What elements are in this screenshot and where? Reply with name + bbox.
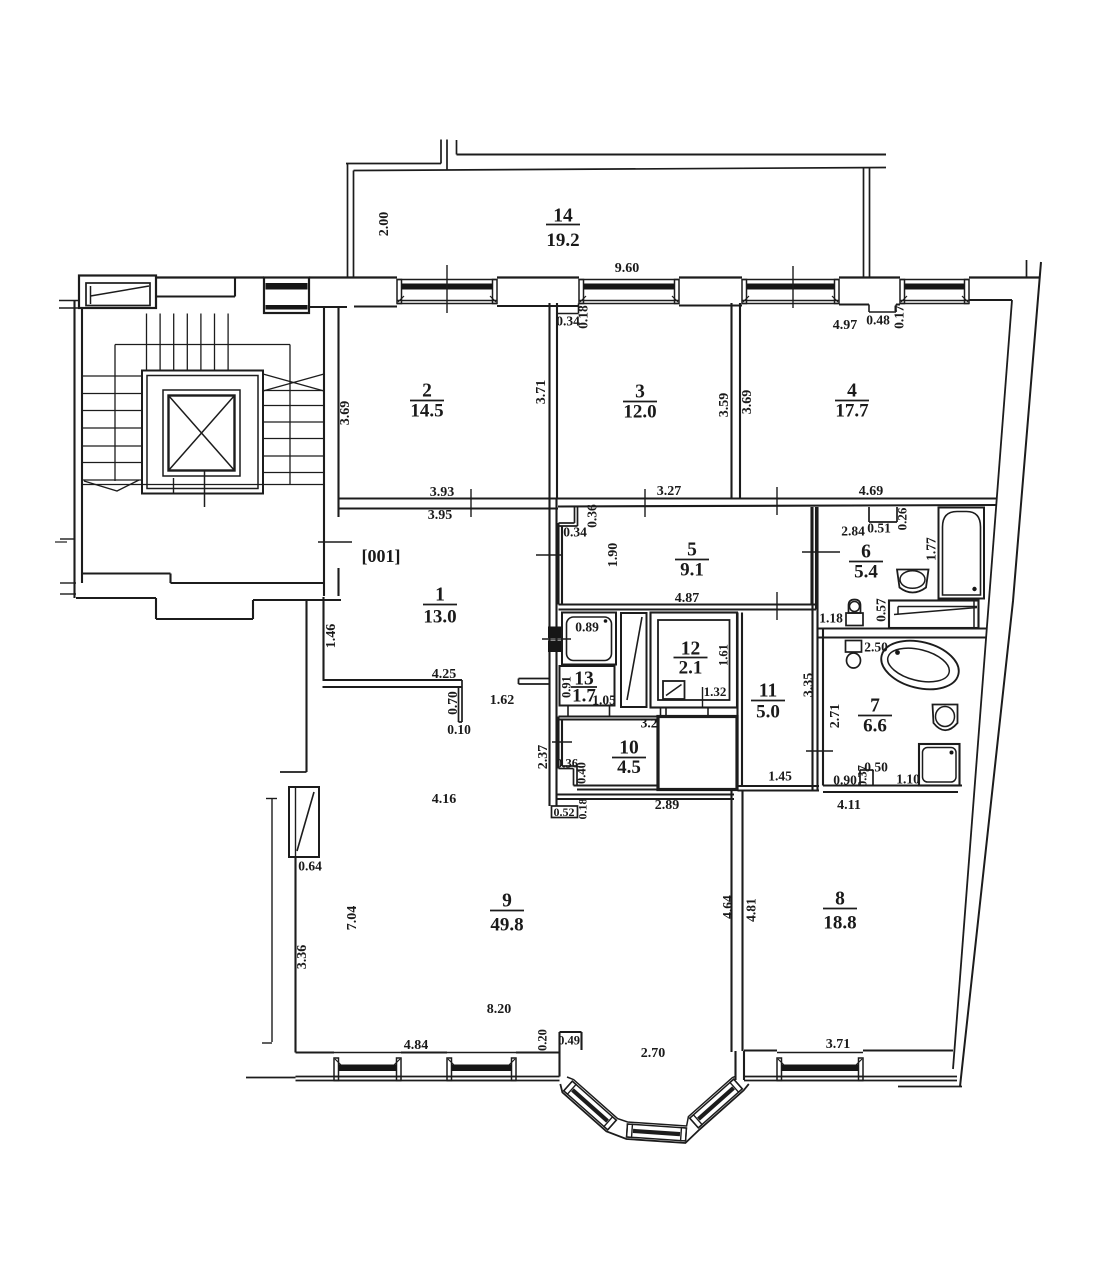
svg-text:0.34: 0.34: [563, 525, 587, 540]
svg-text:4.5: 4.5: [617, 757, 641, 778]
svg-text:2.1: 2.1: [679, 657, 703, 678]
svg-text:1.05: 1.05: [592, 693, 616, 708]
svg-text:0.91: 0.91: [559, 676, 573, 698]
svg-text:6.6: 6.6: [863, 715, 887, 736]
svg-text:2.70: 2.70: [641, 1046, 666, 1061]
svg-text:1.10: 1.10: [896, 772, 920, 787]
svg-text:0.36: 0.36: [585, 504, 600, 528]
svg-text:9.1: 9.1: [680, 559, 704, 580]
svg-text:[001]: [001]: [362, 546, 401, 566]
svg-text:8.20: 8.20: [487, 1002, 512, 1017]
svg-text:2.00: 2.00: [377, 212, 392, 237]
svg-text:0.64: 0.64: [298, 859, 322, 874]
svg-text:8: 8: [835, 889, 845, 910]
svg-text:0.57: 0.57: [874, 598, 889, 622]
svg-text:10: 10: [619, 738, 639, 759]
svg-text:0.18: 0.18: [576, 305, 591, 329]
svg-text:0.10: 0.10: [447, 722, 471, 737]
svg-text:0.52: 0.52: [554, 805, 575, 819]
svg-text:0.89: 0.89: [575, 620, 599, 635]
svg-text:11: 11: [759, 681, 777, 702]
svg-text:1.62: 1.62: [490, 693, 515, 708]
svg-text:4: 4: [847, 381, 857, 402]
svg-text:1.61: 1.61: [716, 644, 730, 666]
svg-text:0.26: 0.26: [894, 507, 909, 530]
svg-text:1.77: 1.77: [924, 537, 939, 561]
svg-text:5.0: 5.0: [756, 701, 780, 722]
svg-text:4.84: 4.84: [404, 1038, 429, 1053]
svg-text:0.48: 0.48: [866, 313, 890, 328]
svg-text:1.18: 1.18: [819, 611, 843, 626]
svg-text:0.90: 0.90: [833, 773, 857, 788]
svg-text:3.93: 3.93: [430, 485, 455, 500]
svg-text:0.18: 0.18: [576, 799, 590, 820]
svg-text:14: 14: [553, 206, 573, 227]
svg-text:4.16: 4.16: [432, 792, 457, 807]
svg-text:2.84: 2.84: [841, 524, 865, 539]
svg-text:0.20: 0.20: [535, 1029, 549, 1051]
svg-text:2.71: 2.71: [828, 704, 843, 729]
svg-text:3.59: 3.59: [717, 393, 732, 418]
svg-text:4.25: 4.25: [432, 667, 457, 682]
svg-text:4.64: 4.64: [720, 895, 735, 919]
svg-text:3.95: 3.95: [428, 508, 453, 523]
svg-text:18.8: 18.8: [823, 912, 856, 933]
svg-text:2.50: 2.50: [864, 640, 888, 655]
svg-text:1.46: 1.46: [324, 624, 339, 649]
svg-text:0.51: 0.51: [867, 521, 891, 536]
svg-text:3.2: 3.2: [641, 716, 658, 731]
svg-text:4.11: 4.11: [837, 798, 861, 813]
svg-text:5: 5: [687, 540, 697, 561]
svg-text:14.5: 14.5: [410, 400, 443, 421]
svg-text:3.35: 3.35: [801, 673, 816, 698]
svg-text:17.7: 17.7: [835, 400, 869, 421]
svg-text:9.60: 9.60: [615, 261, 640, 276]
svg-text:4.97: 4.97: [833, 318, 858, 333]
svg-text:3.36: 3.36: [295, 945, 310, 970]
svg-text:2: 2: [422, 381, 432, 402]
svg-text:3.71: 3.71: [826, 1037, 851, 1052]
svg-text:0.70: 0.70: [445, 691, 460, 715]
svg-text:4.69: 4.69: [859, 484, 884, 499]
svg-text:4.87: 4.87: [675, 591, 700, 606]
svg-text:3: 3: [635, 382, 645, 403]
svg-text:3.27: 3.27: [657, 484, 682, 499]
svg-text:3.69: 3.69: [338, 401, 353, 426]
svg-text:3.69: 3.69: [740, 390, 755, 415]
svg-text:13.0: 13.0: [423, 606, 456, 627]
svg-text:19.2: 19.2: [546, 230, 579, 251]
svg-text:9: 9: [502, 891, 512, 912]
svg-text:1.90: 1.90: [606, 543, 621, 568]
svg-text:7: 7: [870, 696, 880, 717]
svg-text:6: 6: [861, 542, 871, 563]
svg-text:12.0: 12.0: [623, 401, 656, 422]
svg-text:1: 1: [435, 585, 445, 606]
svg-text:49.8: 49.8: [490, 914, 523, 935]
svg-text:0.40: 0.40: [574, 762, 588, 784]
svg-text:0.50: 0.50: [864, 760, 888, 775]
svg-text:2.37: 2.37: [536, 745, 551, 770]
svg-text:2.89: 2.89: [655, 798, 680, 813]
svg-text:3.71: 3.71: [534, 380, 549, 405]
svg-text:1.45: 1.45: [768, 769, 792, 784]
svg-text:7.04: 7.04: [345, 906, 360, 931]
svg-text:0.17: 0.17: [892, 305, 907, 329]
svg-text:4.81: 4.81: [744, 898, 759, 922]
svg-text:1.32: 1.32: [704, 684, 727, 699]
svg-text:0.49: 0.49: [558, 1033, 580, 1047]
svg-text:5.4: 5.4: [854, 561, 878, 582]
